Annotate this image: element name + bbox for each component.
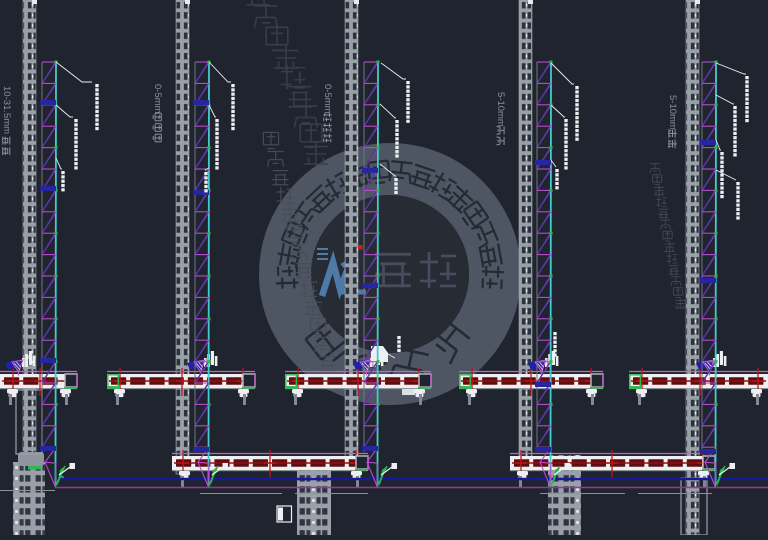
svg-text:0-5mm: 0-5mm: [322, 84, 333, 114]
svg-text:5-10mm: 5-10mm: [667, 95, 678, 130]
svg-text:5-10mm: 5-10mm: [495, 92, 506, 127]
svg-text:10-31.5mm: 10-31.5mm: [1, 86, 12, 134]
svg-text:0-5mm: 0-5mm: [152, 84, 163, 114]
